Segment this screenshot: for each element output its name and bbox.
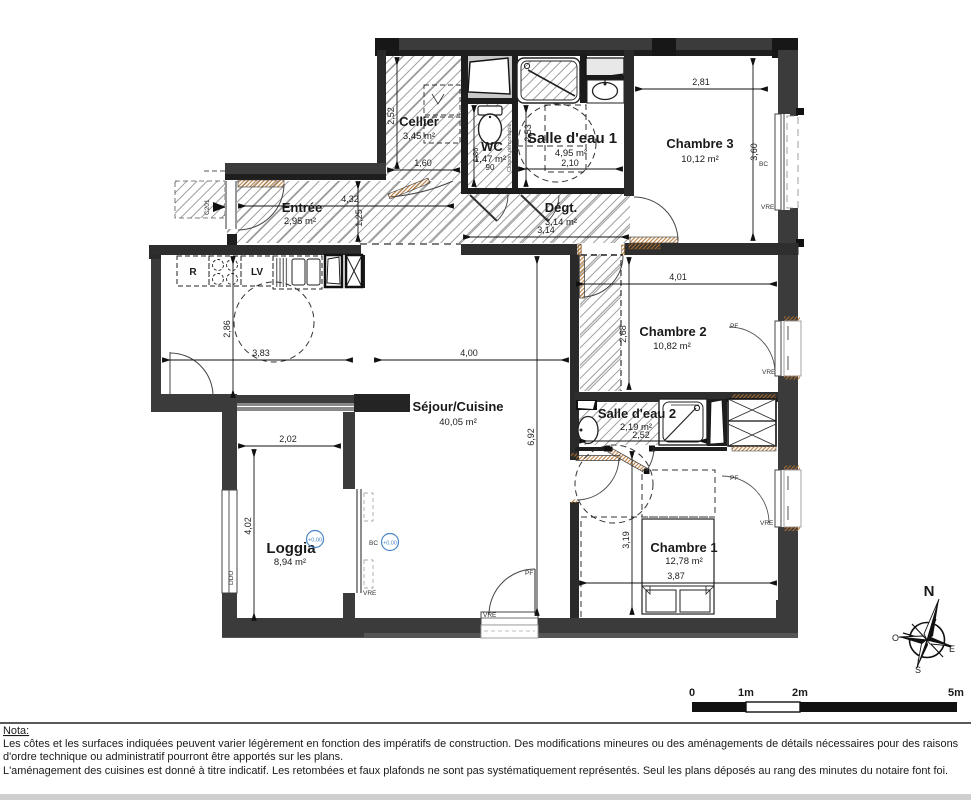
svg-text:5m: 5m (948, 687, 964, 699)
svg-text:4,32: 4,32 (341, 194, 359, 204)
svg-text:6,92: 6,92 (526, 428, 536, 446)
svg-text:LV: LV (251, 267, 263, 278)
svg-text:10,82 m²: 10,82 m² (653, 341, 691, 352)
svg-text:VRE: VRE (761, 204, 775, 211)
svg-text:Salle d'eau 2: Salle d'eau 2 (598, 406, 676, 421)
svg-text:1,86: 1,86 (471, 148, 480, 163)
svg-text:+0,00: +0,00 (308, 538, 322, 544)
svg-text:2,02: 2,02 (279, 434, 297, 444)
svg-text:Cloison démontable: Cloison démontable (507, 123, 513, 172)
svg-text:4,00: 4,00 (460, 348, 478, 358)
svg-text:1,60: 1,60 (414, 158, 432, 168)
svg-text:Salle d'eau 1: Salle d'eau 1 (527, 130, 617, 147)
svg-text:Dégt.: Dégt. (545, 200, 578, 215)
svg-text:2,10: 2,10 (561, 158, 579, 168)
svg-text:WC: WC (481, 139, 503, 154)
svg-text:C201: C201 (204, 199, 211, 215)
svg-text:3,19: 3,19 (621, 531, 631, 549)
svg-text:Chambre 3: Chambre 3 (666, 136, 733, 151)
svg-text:L'aménagement des cuisines est: L'aménagement des cuisines est donné à t… (3, 765, 948, 777)
svg-text:+0,00: +0,00 (383, 541, 397, 547)
svg-text:O: O (892, 633, 899, 643)
svg-text:E: E (949, 644, 955, 654)
svg-text:4,02: 4,02 (243, 517, 253, 535)
svg-text:S: S (915, 665, 921, 675)
svg-text:1m: 1m (738, 687, 754, 699)
svg-text:Séjour/Cuisine: Séjour/Cuisine (412, 399, 503, 414)
svg-text:BC: BC (369, 540, 378, 547)
svg-text:8,94 m²: 8,94 m² (274, 557, 306, 568)
svg-text:PF: PF (525, 570, 533, 577)
svg-text:2m: 2m (792, 687, 808, 699)
svg-text:VRE: VRE (363, 590, 377, 597)
svg-text:3,87: 3,87 (667, 571, 685, 581)
svg-text:Chambre 1: Chambre 1 (650, 540, 717, 555)
svg-text:2,52: 2,52 (386, 107, 396, 125)
svg-text:d'ordre technique ou administr: d'ordre technique ou administratif pourr… (3, 751, 343, 763)
svg-text:R: R (189, 267, 197, 278)
svg-text:3,45 m²: 3,45 m² (403, 131, 435, 142)
svg-text:2,52: 2,52 (632, 430, 650, 440)
svg-text:N: N (924, 583, 935, 600)
svg-text:Les côtes et les surfaces indi: Les côtes et les surfaces indiquées peuv… (3, 738, 959, 750)
svg-text:90: 90 (486, 163, 495, 172)
svg-text:Nota:: Nota: (3, 725, 29, 737)
svg-text:PF: PF (730, 323, 738, 330)
svg-text:3,14: 3,14 (537, 225, 555, 235)
svg-text:3,60: 3,60 (749, 143, 759, 161)
svg-text:2,81: 2,81 (692, 77, 710, 87)
svg-text:12,78 m²: 12,78 m² (665, 556, 703, 567)
svg-text:4,01: 4,01 (669, 272, 687, 282)
svg-text:2,95 m²: 2,95 m² (284, 216, 316, 227)
svg-text:0: 0 (689, 687, 695, 699)
svg-text:40,05 m²: 40,05 m² (439, 417, 477, 428)
svg-text:DDO: DDO (228, 571, 235, 585)
svg-text:VRE: VRE (762, 369, 776, 376)
svg-text:2,86: 2,86 (222, 320, 232, 338)
svg-text:BC: BC (759, 161, 768, 168)
svg-text:2,53: 2,53 (523, 124, 533, 142)
svg-text:VRE: VRE (483, 612, 497, 619)
svg-text:Chambre 2: Chambre 2 (639, 324, 706, 339)
svg-text:Cellier: Cellier (399, 114, 439, 129)
svg-text:10,12 m²: 10,12 m² (681, 154, 719, 165)
svg-text:2,68: 2,68 (618, 325, 628, 343)
svg-text:PF: PF (730, 475, 738, 482)
svg-text:VRE: VRE (760, 520, 774, 527)
svg-text:1,25: 1,25 (354, 209, 364, 227)
svg-text:3,83: 3,83 (252, 348, 270, 358)
svg-text:Entrée: Entrée (282, 200, 322, 215)
